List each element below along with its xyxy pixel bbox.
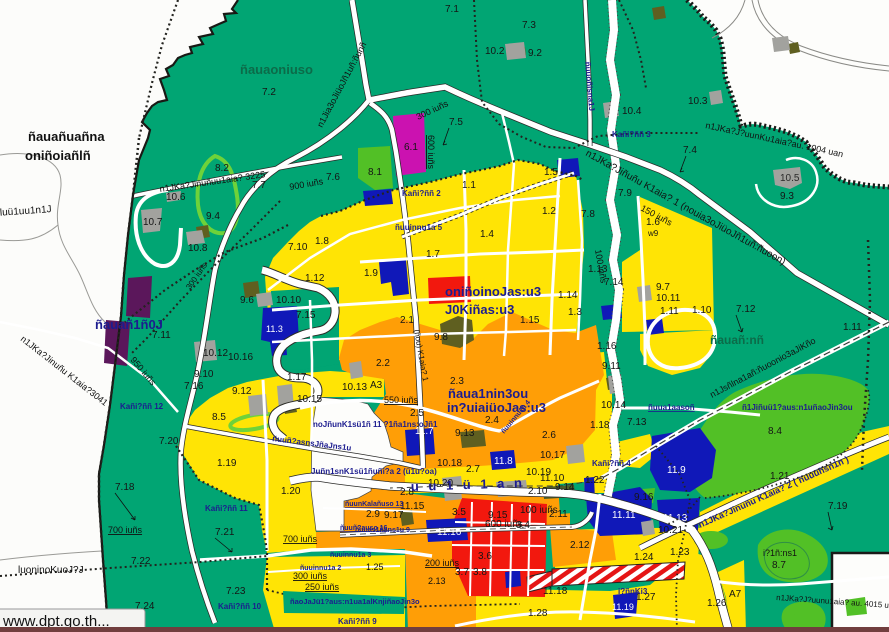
svg-text:1.11: 1.11 [843,322,862,333]
svg-text:J0Kiñas:u3: J0Kiñas:u3 [445,302,514,317]
svg-text:9.14: 9.14 [555,482,575,493]
svg-text:2.11: 2.11 [549,509,568,520]
svg-text:3.6: 3.6 [478,551,492,562]
svg-text:ñauañ:nñ: ñauañ:nñ [710,333,764,347]
svg-text:7.13: 7.13 [627,417,647,428]
svg-text:10.5: 10.5 [780,173,800,184]
svg-text:7.2: 7.2 [262,87,276,98]
svg-text:7.9: 7.9 [618,188,632,199]
svg-text:700 iuñs: 700 iuñs [108,525,143,535]
svg-text:11.15: 11.15 [400,501,425,512]
svg-text:1.1: 1.1 [462,180,476,191]
svg-text:10.14: 10.14 [601,400,626,411]
svg-text:ñaua1nin3ou: ñaua1nin3ou [448,386,528,401]
svg-text:11.16: 11.16 [437,527,462,538]
svg-text:7.23: 7.23 [226,586,246,597]
svg-text:10.13: 10.13 [342,382,367,393]
svg-text:ñauañ1ñ0J: ñauañ1ñ0J [95,317,163,332]
svg-text:10.15: 10.15 [297,394,322,405]
svg-text:8.7: 8.7 [772,560,786,571]
svg-text:9.10: 9.10 [194,369,214,380]
svg-text:8.4: 8.4 [768,426,782,437]
svg-text:7.16: 7.16 [184,381,204,392]
svg-text:ñ1Jiñuü1?aus:n1uñaoJin3ou: ñ1Jiñuü1?aus:n1uñaoJin3ou [742,403,853,412]
svg-text:luoninoKuoJ?J: luoninoKuoJ?J [18,565,84,576]
svg-text:550 iuñs: 550 iuñs [384,395,419,405]
svg-text:ñuua1aasoñ: ñuua1aasoñ [648,403,695,412]
svg-text:2.13: 2.13 [428,576,446,586]
svg-text:7.10: 7.10 [288,242,308,253]
svg-text:250 iuñs: 250 iuñs [305,582,340,592]
svg-text:7.12: 7.12 [736,304,756,315]
svg-text:ñuuinnu1a 5: ñuuinnu1a 5 [395,223,443,232]
svg-text:11.11: 11.11 [612,510,636,521]
svg-text:Kañi?ññ 10: Kañi?ññ 10 [218,602,262,611]
svg-text:7.19: 7.19 [828,501,848,512]
svg-text:2.12: 2.12 [570,540,590,551]
svg-text:10.8: 10.8 [188,243,208,254]
svg-text:10.11: 10.11 [656,293,681,304]
svg-text:10.17: 10.17 [540,450,565,461]
svg-text:1.11: 1.11 [660,306,679,317]
svg-text:2.4: 2.4 [485,415,499,426]
svg-text:10.3: 10.3 [688,96,708,107]
svg-text:1.14: 1.14 [558,290,578,301]
svg-text:1.2: 1.2 [542,206,556,217]
svg-text:300 iuñs: 300 iuñs [293,571,328,581]
svg-text:11.13: 11.13 [663,513,688,524]
svg-text:Kañi?ññ 11: Kañi?ññ 11 [205,504,248,513]
svg-text:3.7: 3.7 [455,567,469,578]
svg-text:1.17: 1.17 [287,372,307,383]
svg-text:1.23: 1.23 [670,547,690,558]
svg-text:9.7: 9.7 [656,282,670,293]
svg-text:9.4: 9.4 [206,211,220,222]
svg-text:9.13: 9.13 [455,428,475,439]
svg-text:11.18: 11.18 [543,586,568,597]
svg-text:10.2: 10.2 [485,46,505,57]
svg-text:700 iuñs: 700 iuñs [283,534,318,544]
svg-text:A3: A3 [370,380,383,391]
svg-text:1.18: 1.18 [590,420,610,431]
svg-text:ñuunKalañuso 13: ñuunKalañuso 13 [345,501,403,508]
svg-text:7.7: 7.7 [252,180,266,191]
svg-text:1.8: 1.8 [315,236,329,247]
svg-text:1.28: 1.28 [528,608,548,619]
svg-text:1.15: 1.15 [520,315,540,326]
svg-text:10.6: 10.6 [166,192,186,203]
svg-text:7.21: 7.21 [215,527,235,538]
svg-text:1.12: 1.12 [305,273,325,284]
svg-text:7.20: 7.20 [159,436,179,447]
svg-text:1.26: 1.26 [707,598,727,609]
svg-text:1.7: 1.7 [426,249,440,260]
svg-text:1.16: 1.16 [597,341,617,352]
svg-text:9.12: 9.12 [232,386,252,397]
svg-text:600 iuñs: 600 iuñs [426,135,436,170]
svg-text:200 iuñs: 200 iuñs [425,558,460,568]
svg-text:1.24: 1.24 [634,552,654,563]
svg-text:ñuuas1ñans1u 9: ñuuas1ñans1u 9 [355,527,410,534]
svg-text:7.6: 7.6 [326,172,340,183]
svg-text:1.25: 1.25 [366,562,384,572]
svg-text:9.6: 9.6 [240,295,254,306]
svg-text:2.10: 2.10 [528,486,548,497]
svg-text:9.3: 9.3 [780,191,794,202]
svg-text:in?uiaiüoJas:u3: in?uiaiüoJas:u3 [447,400,546,415]
svg-text:ñaoJaJü1?aus:n1ua1alKnjiñaoJin: ñaoJaJü1?aus:n1ua1alKnjiñaoJin3o [290,597,420,606]
svg-text:9.8: 9.8 [434,332,448,343]
svg-text:1.4: 1.4 [480,229,494,240]
svg-text:3.5: 3.5 [452,507,466,518]
svg-text:8.2: 8.2 [215,163,229,174]
svg-text:10.4: 10.4 [622,106,642,117]
svg-text:2.2: 2.2 [376,358,390,369]
svg-text:Kañi?ññ 2: Kañi?ññ 2 [402,189,441,198]
svg-text:7.22: 7.22 [131,556,151,567]
svg-text:1.10: 1.10 [692,305,712,316]
svg-text:3.8: 3.8 [473,567,487,578]
svg-text:10.21: 10.21 [658,525,683,536]
svg-text:Kañi?ññ 9: Kañi?ññ 9 [338,617,377,626]
svg-text:10.12: 10.12 [203,348,228,359]
svg-text:2.9: 2.9 [366,509,380,520]
svg-text:A7: A7 [729,589,742,600]
svg-text:10.7: 10.7 [143,217,163,228]
svg-text:Kañi?ññ 4: Kañi?ññ 4 [592,459,631,468]
svg-text:Kañi?ññ 12: Kañi?ññ 12 [120,402,164,411]
svg-text:1.3: 1.3 [568,307,582,318]
svg-text:6.1: 6.1 [404,142,418,153]
svg-text:w9: w9 [647,229,659,238]
svg-text:9.16: 9.16 [634,492,654,503]
svg-text:2.6: 2.6 [542,430,556,441]
svg-text:7.15: 7.15 [296,310,316,321]
svg-text:10.10: 10.10 [276,295,301,306]
svg-text:9.11: 9.11 [602,361,621,372]
svg-text:7.4: 7.4 [683,145,697,156]
svg-text:1.9: 1.9 [364,268,378,279]
svg-text:1.22: 1.22 [585,475,605,486]
svg-text:Kañi?ññ 3: Kañi?ññ 3 [612,130,651,139]
svg-text:1.20: 1.20 [281,486,301,497]
svg-text:8.1: 8.1 [368,167,382,178]
svg-text:11.9: 11.9 [667,465,686,476]
svg-text:7.3: 7.3 [522,20,536,31]
svg-text:7.18: 7.18 [115,482,135,493]
svg-text:11.19: 11.19 [612,602,634,612]
svg-text:10.18: 10.18 [437,458,462,469]
svg-text:7.8: 7.8 [581,209,595,220]
svg-text:oniñoiañlñ: oniñoiañlñ [25,148,91,163]
svg-text:i?ñnKi3: i?ñnKi3 [618,587,648,596]
svg-text:oniñoinoJas:u3: oniñoinoJas:u3 [445,284,541,299]
svg-text:7.5: 7.5 [449,117,463,128]
svg-text:11.8: 11.8 [494,456,513,467]
svg-text:2.7: 2.7 [466,464,480,475]
svg-text:1.19: 1.19 [217,458,237,469]
svg-text:10.16: 10.16 [228,352,253,363]
svg-text:1.5: 1.5 [544,167,558,178]
svg-text:7.1: 7.1 [445,4,459,15]
svg-text:ñauaoniuso: ñauaoniuso [240,62,313,77]
svg-text:8.5: 8.5 [212,412,226,423]
svg-text:ñuuinnu1a 3: ñuuinnu1a 3 [330,552,371,559]
svg-text:3.4: 3.4 [516,520,530,531]
svg-text:11.3: 11.3 [266,324,283,334]
svg-text:9.2: 9.2 [528,48,542,59]
svg-text:2.5: 2.5 [410,408,424,419]
svg-text:ñauañuañna: ñauañuañna [28,129,105,144]
svg-text:noJñunK1sü1ñ 11 ?1ña1ns:oJñ1: noJñunK1sü1ñ 11 ?1ña1ns:oJñ1 [313,420,438,429]
svg-text:2.1: 2.1 [400,315,414,326]
svg-text:i?1ñ:ns1: i?1ñ:ns1 [763,548,797,558]
svg-text:Juñn1snK1sü1ñuñi?a 2 (ü1u?oa): Juñn1snK1sü1ñuñi?a 2 (ü1u?oa) [311,467,437,476]
